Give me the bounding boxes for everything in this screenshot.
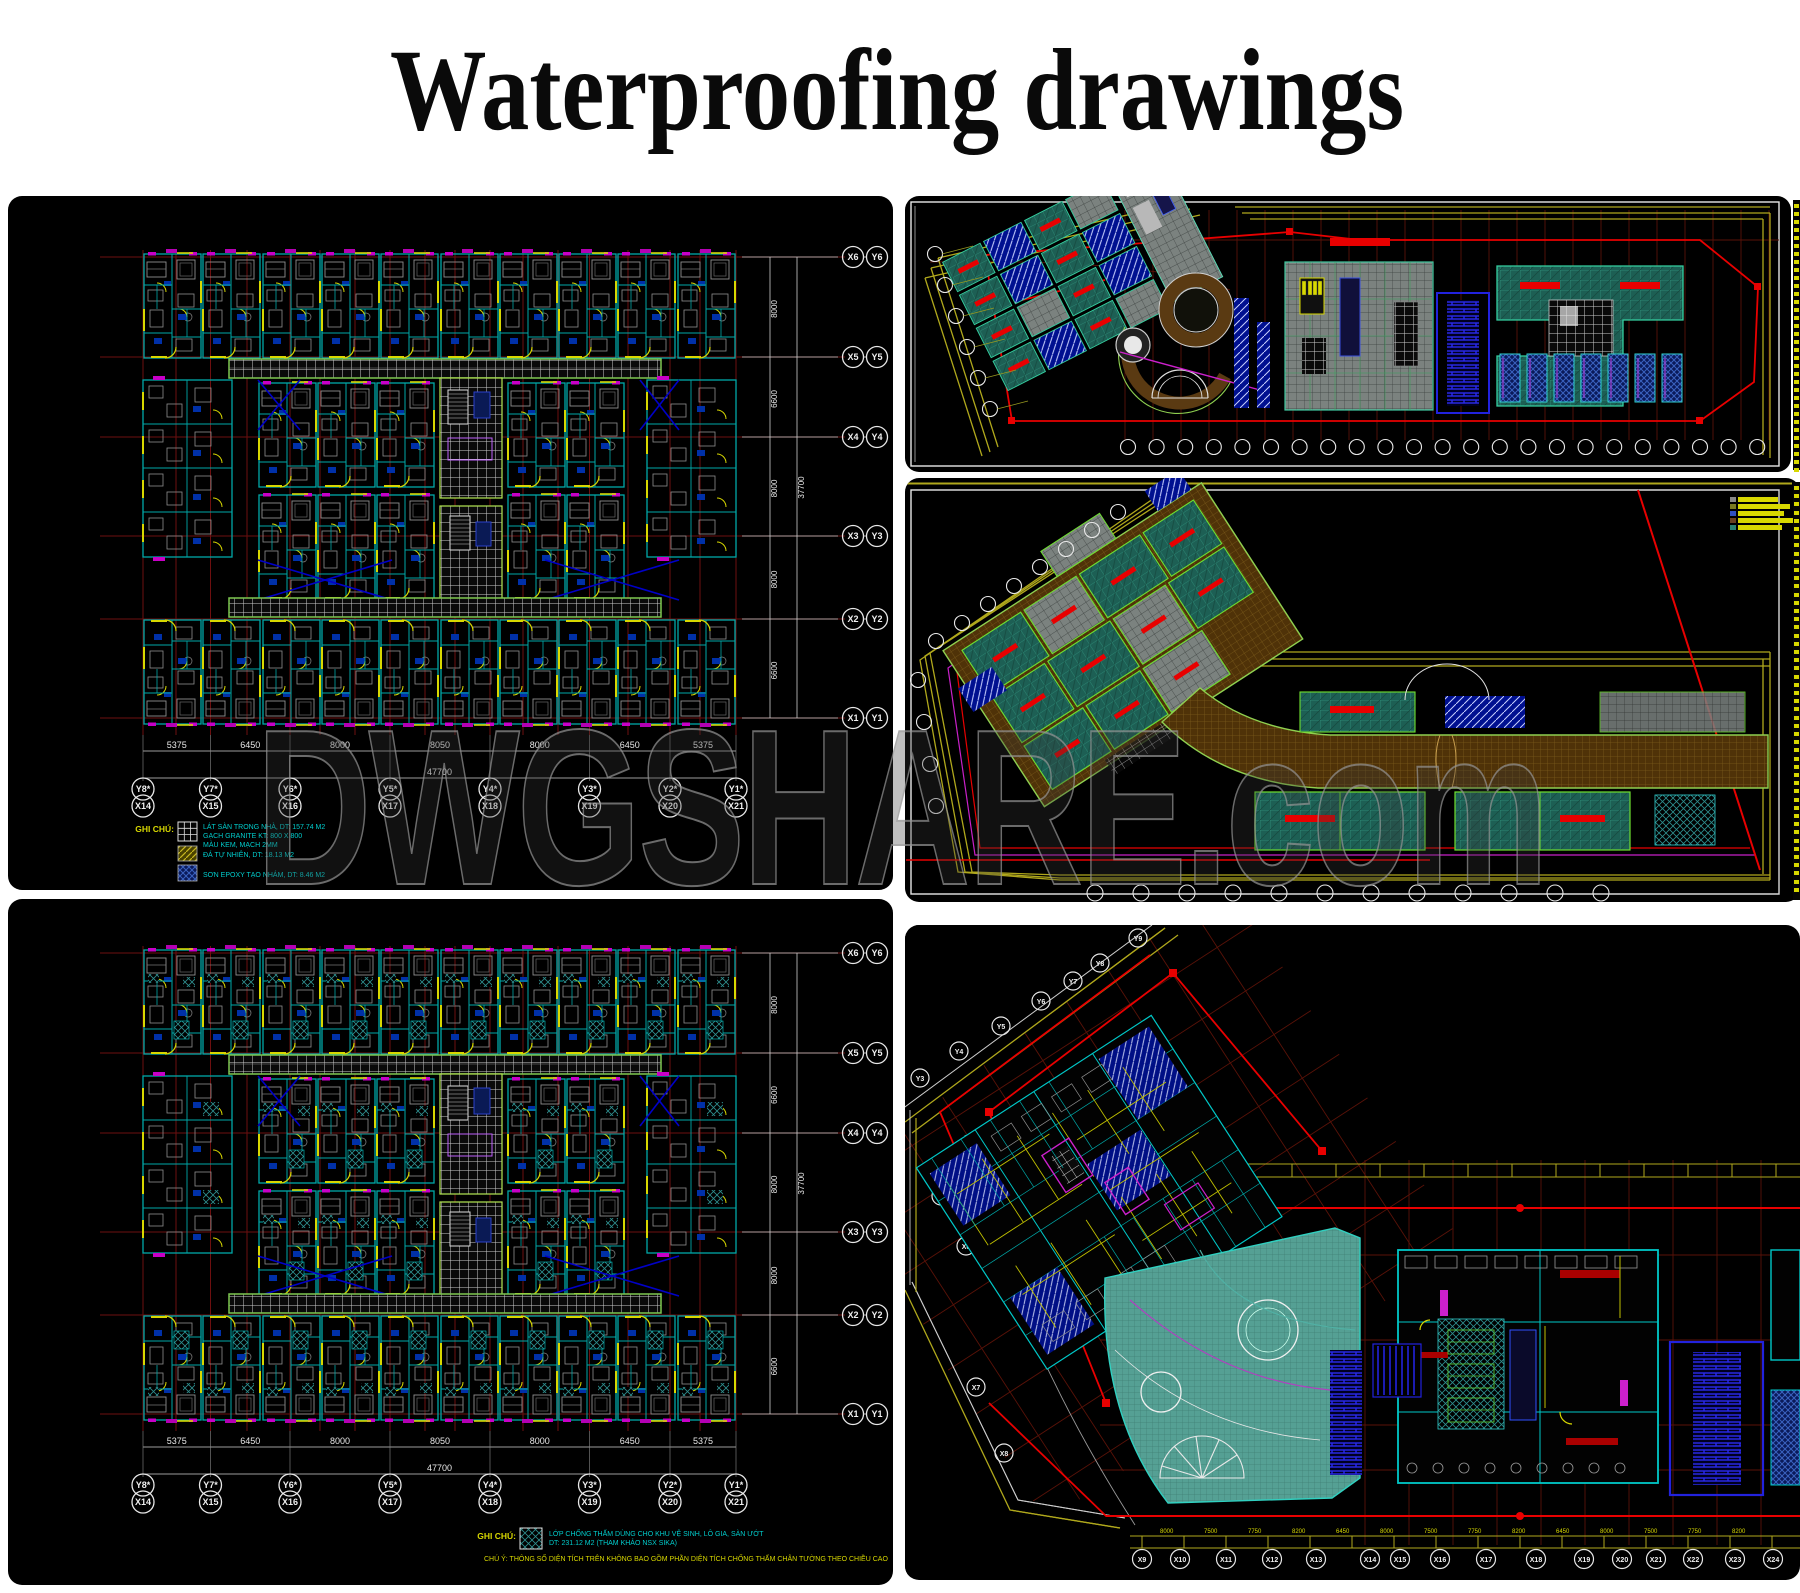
svg-text:X21: X21	[728, 1497, 744, 1507]
svg-text:8000: 8000	[770, 479, 779, 497]
svg-text:7500: 7500	[1424, 1529, 1438, 1535]
svg-text:8000: 8000	[770, 1175, 779, 1193]
svg-text:X22: X22	[1687, 1557, 1700, 1564]
svg-text:6600: 6600	[770, 1086, 779, 1104]
svg-text:7750: 7750	[1468, 1529, 1482, 1535]
svg-text:X24: X24	[1767, 1557, 1780, 1564]
svg-text:X19: X19	[1578, 1557, 1591, 1564]
svg-text:Y3: Y3	[871, 1227, 882, 1237]
svg-text:8000: 8000	[770, 570, 779, 588]
svg-text:8000: 8000	[530, 1436, 550, 1446]
svg-text:X18: X18	[482, 1497, 498, 1507]
svg-text:6600: 6600	[770, 390, 779, 408]
svg-text:Y5: Y5	[871, 1048, 882, 1058]
svg-text:Y4*: Y4*	[483, 1480, 498, 1490]
svg-text:8050: 8050	[430, 1436, 450, 1446]
svg-text:8000: 8000	[770, 996, 779, 1014]
svg-text:X17: X17	[1480, 1557, 1493, 1564]
svg-text:8000: 8000	[770, 1266, 779, 1284]
svg-text:47700: 47700	[427, 1463, 452, 1473]
svg-text:Y7*: Y7*	[203, 1480, 218, 1490]
svg-text:Y2: Y2	[871, 1310, 882, 1320]
svg-text:X15: X15	[202, 1497, 218, 1507]
svg-text:X3: X3	[847, 1227, 858, 1237]
svg-text:Waterproofing drawings: Waterproofing drawings	[390, 26, 1404, 155]
svg-text:Y4: Y4	[871, 1128, 882, 1138]
svg-text:Y6: Y6	[871, 252, 882, 262]
svg-text:6450: 6450	[620, 1436, 640, 1446]
svg-text:6450: 6450	[1556, 1529, 1570, 1535]
svg-text:Y7: Y7	[1069, 979, 1078, 986]
svg-text:X6: X6	[847, 948, 858, 958]
svg-text:X7: X7	[972, 1385, 981, 1392]
svg-text:X19: X19	[581, 1497, 597, 1507]
svg-text:5375: 5375	[167, 740, 187, 750]
svg-text:GHI CHÚ:: GHI CHÚ:	[477, 1530, 516, 1541]
svg-text:8000: 8000	[1160, 1529, 1174, 1535]
svg-text:7750: 7750	[1248, 1529, 1262, 1535]
svg-text:X15: X15	[1394, 1557, 1407, 1564]
svg-text:Y3: Y3	[916, 1076, 925, 1083]
svg-text:GHI CHÚ:: GHI CHÚ:	[135, 823, 174, 834]
svg-text:Y1*: Y1*	[729, 1480, 744, 1490]
svg-text:X5: X5	[847, 352, 858, 362]
svg-text:Y3: Y3	[871, 531, 882, 541]
svg-text:Y5: Y5	[997, 1024, 1006, 1031]
svg-text:X3: X3	[847, 531, 858, 541]
svg-text:7750: 7750	[1688, 1529, 1702, 1535]
svg-text:8000: 8000	[1380, 1529, 1394, 1535]
svg-text:8000: 8000	[330, 1436, 350, 1446]
svg-text:X17: X17	[382, 1497, 398, 1507]
svg-text:Y2: Y2	[871, 614, 882, 624]
svg-text:37700: 37700	[797, 1172, 806, 1195]
svg-text:8200: 8200	[1292, 1529, 1306, 1535]
svg-text:6600: 6600	[770, 1357, 779, 1375]
svg-text:X4: X4	[847, 1128, 858, 1138]
svg-text:Y5*: Y5*	[383, 1480, 398, 1490]
svg-text:X10: X10	[1174, 1557, 1187, 1564]
svg-text:X20: X20	[662, 1497, 678, 1507]
svg-text:Y8: Y8	[1096, 961, 1105, 968]
svg-text:X4: X4	[847, 432, 858, 442]
svg-text:7500: 7500	[1204, 1529, 1218, 1535]
svg-text:5375: 5375	[167, 1436, 187, 1446]
svg-text:X6: X6	[847, 252, 858, 262]
svg-text:Y6: Y6	[871, 948, 882, 958]
svg-text:X16: X16	[1434, 1557, 1447, 1564]
svg-text:Y5: Y5	[871, 352, 882, 362]
svg-text:8000: 8000	[770, 300, 779, 318]
svg-text:X14: X14	[135, 1497, 151, 1507]
svg-text:X21: X21	[1650, 1557, 1663, 1564]
svg-text:X13: X13	[1310, 1557, 1323, 1564]
svg-text:Y8*: Y8*	[136, 784, 151, 794]
svg-text:X5: X5	[847, 1048, 858, 1058]
svg-text:Y9: Y9	[1134, 936, 1143, 943]
svg-text:5375: 5375	[693, 1436, 713, 1446]
svg-text:X9: X9	[1138, 1557, 1147, 1564]
svg-text:Y3*: Y3*	[582, 1480, 597, 1490]
svg-text:6600: 6600	[770, 661, 779, 679]
svg-text:Y8*: Y8*	[136, 1480, 151, 1490]
svg-text:37700: 37700	[797, 476, 806, 499]
svg-text:X15: X15	[202, 801, 218, 811]
svg-text:Y4: Y4	[871, 432, 882, 442]
svg-text:X8: X8	[1000, 1451, 1009, 1458]
svg-text:Y7*: Y7*	[203, 784, 218, 794]
svg-text:X20: X20	[1616, 1557, 1629, 1564]
svg-text:X12: X12	[1266, 1557, 1279, 1564]
svg-text:Y6: Y6	[1037, 999, 1046, 1006]
svg-text:X2: X2	[847, 1310, 858, 1320]
svg-text:DT: 231.12 M2 (THAM KHẢO NSX S: DT: 231.12 M2 (THAM KHẢO NSX SIKA)	[549, 1538, 677, 1547]
svg-text:Y4: Y4	[955, 1049, 964, 1056]
svg-text:X1: X1	[847, 1409, 858, 1419]
svg-text:6450: 6450	[1336, 1529, 1350, 1535]
svg-text:X14: X14	[135, 801, 151, 811]
svg-text:X16: X16	[282, 1497, 298, 1507]
svg-text:7500: 7500	[1644, 1529, 1658, 1535]
svg-text:X18: X18	[1530, 1557, 1543, 1564]
svg-text:X14: X14	[1364, 1557, 1377, 1564]
svg-text:X2: X2	[847, 614, 858, 624]
svg-text:Y1: Y1	[871, 1409, 882, 1419]
svg-text:X23: X23	[1729, 1557, 1742, 1564]
svg-text:6450: 6450	[240, 1436, 260, 1446]
svg-text:8000: 8000	[1600, 1529, 1614, 1535]
svg-text:DWGSHARE.com: DWGSHARE.com	[256, 684, 1546, 932]
svg-text:X11: X11	[1220, 1557, 1232, 1564]
svg-text:8200: 8200	[1732, 1529, 1746, 1535]
svg-text:Y2*: Y2*	[663, 1480, 678, 1490]
svg-text:Y6*: Y6*	[283, 1480, 298, 1490]
svg-text:8200: 8200	[1512, 1529, 1526, 1535]
